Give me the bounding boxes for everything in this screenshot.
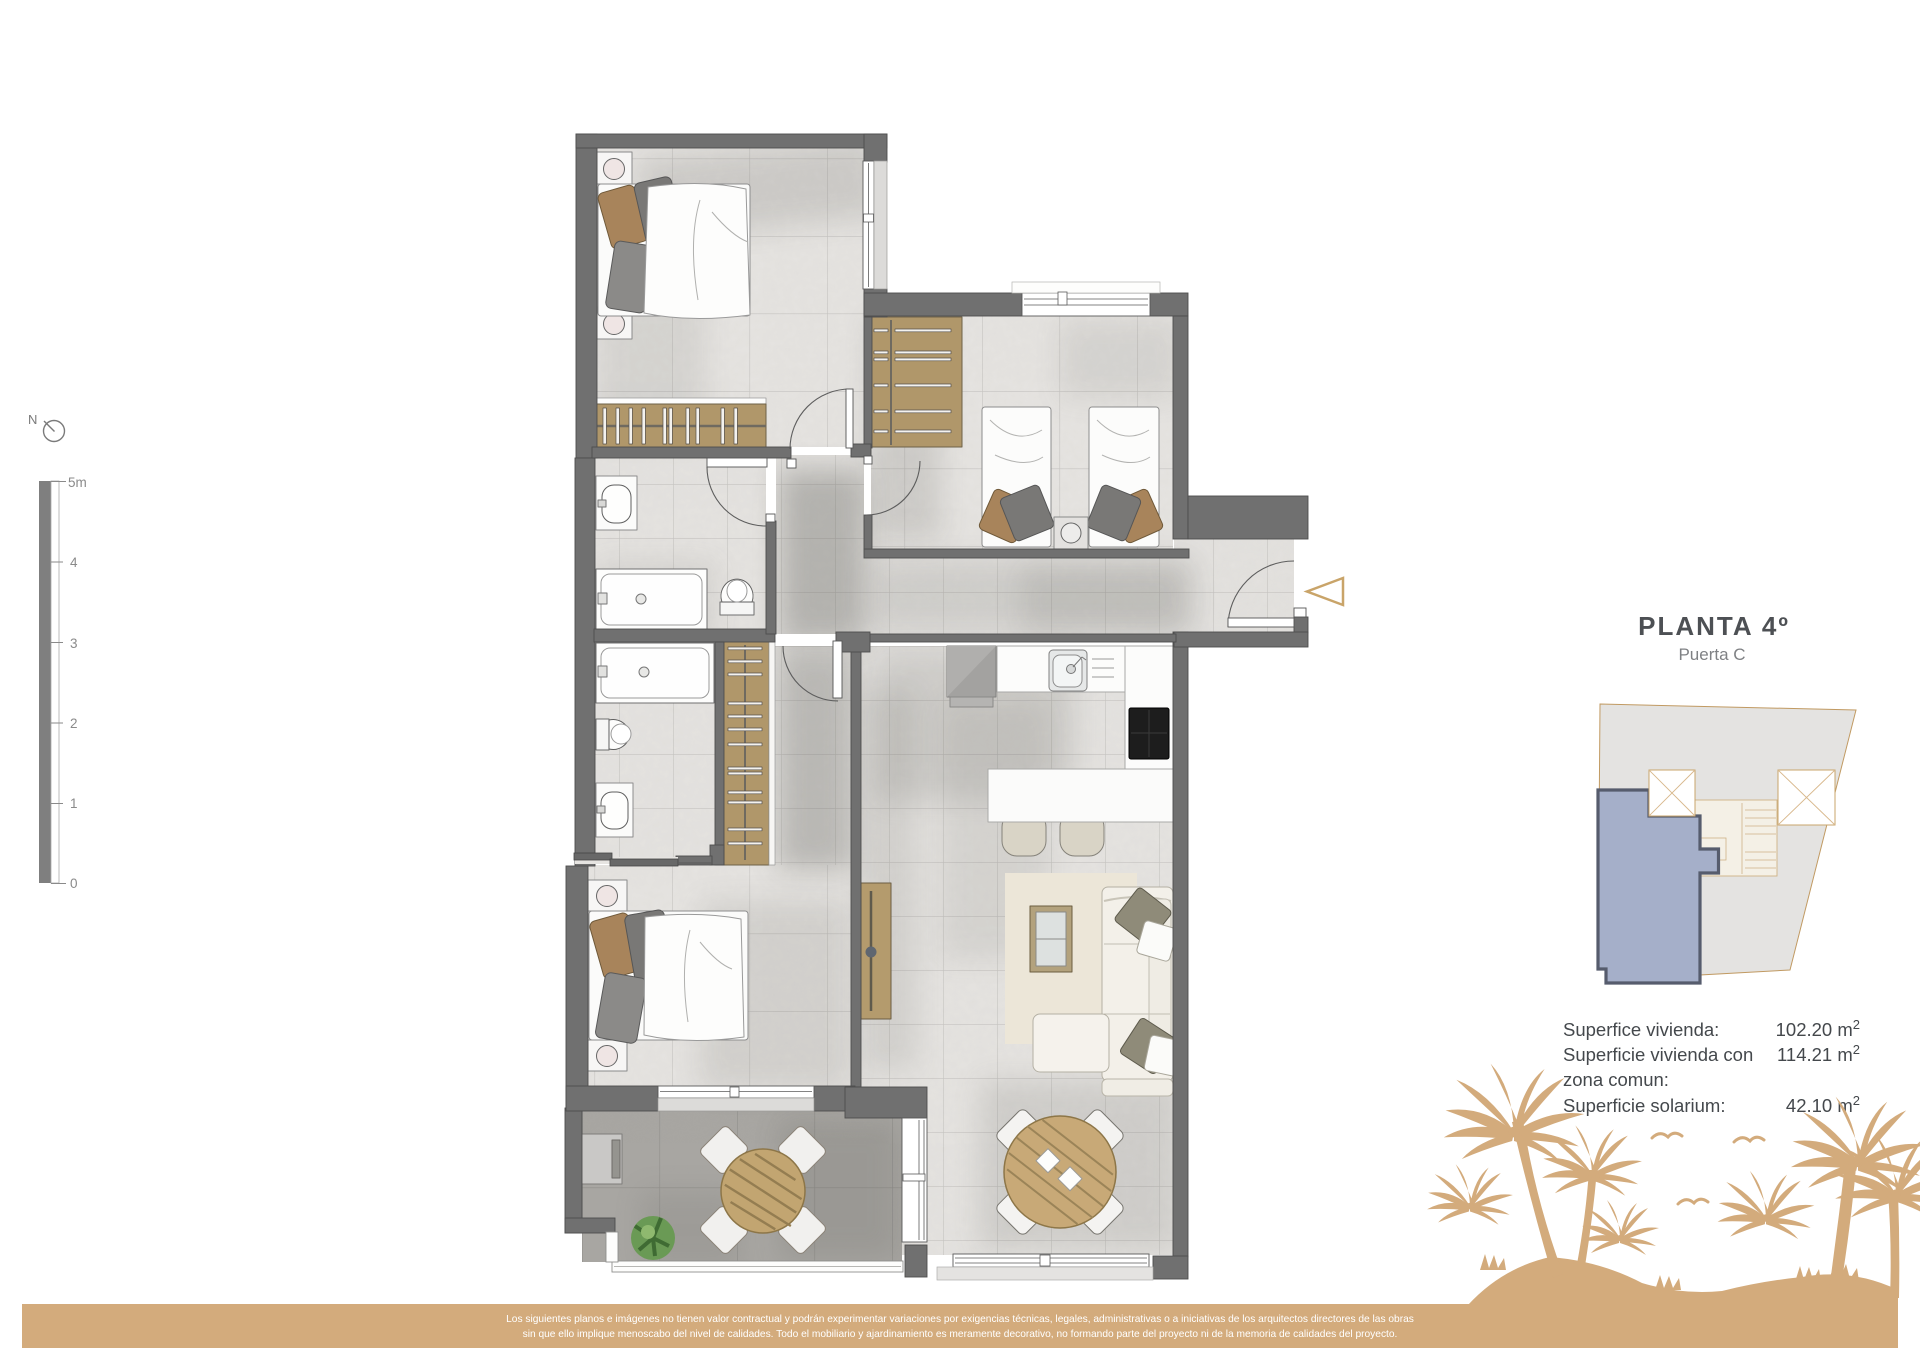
svg-text:114.21 m2: 114.21 m2 (1777, 1042, 1860, 1065)
svg-text:PLANTA 4º: PLANTA 4º (1638, 611, 1790, 641)
svg-text:0: 0 (70, 876, 78, 891)
svg-text:N: N (28, 412, 37, 427)
svg-text:Puerta C: Puerta C (1678, 645, 1745, 664)
svg-text:Superficie vivienda con: Superficie vivienda con (1563, 1044, 1753, 1065)
svg-text:4: 4 (70, 555, 78, 570)
svg-text:2: 2 (70, 716, 78, 731)
svg-text:zona comun:: zona comun: (1563, 1069, 1669, 1090)
svg-text:102.20 m2: 102.20 m2 (1776, 1017, 1860, 1040)
svg-text:sin que ello implique menoscab: sin que ello implique menoscabo del nive… (523, 1329, 1398, 1340)
svg-text:42.10 m2: 42.10 m2 (1786, 1093, 1860, 1116)
svg-text:1: 1 (70, 796, 78, 811)
svg-text:Los siguientes planos e imágen: Los siguientes planos e imágenes no tien… (506, 1314, 1414, 1325)
svg-text:Superfice vivienda:: Superfice vivienda: (1563, 1019, 1719, 1040)
svg-text:Superficie solarium:: Superficie solarium: (1563, 1095, 1725, 1116)
svg-text:5m: 5m (68, 475, 87, 490)
svg-text:3: 3 (70, 636, 78, 651)
